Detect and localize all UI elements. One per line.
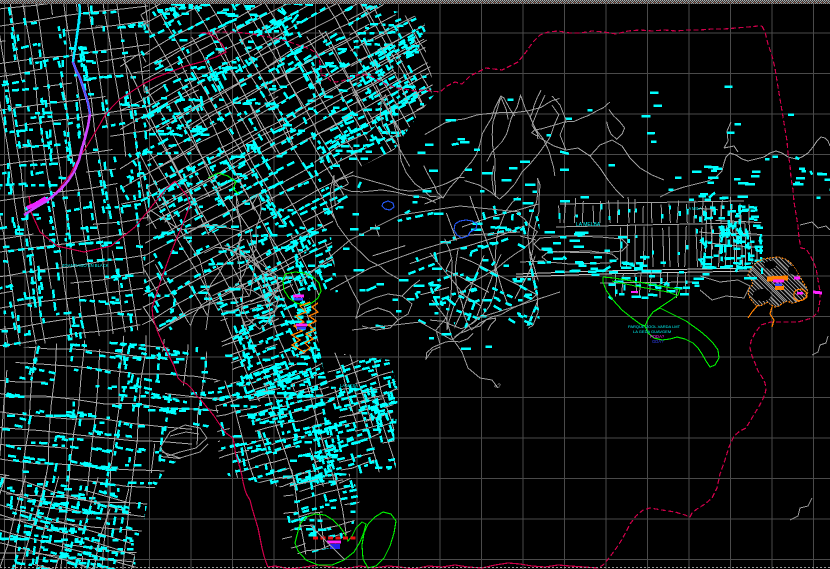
svg-text:LA MELBA: LA MELBA bbox=[576, 222, 601, 228]
svg-text:ATE: ATE bbox=[95, 24, 103, 29]
svg-text:GDA?: GDA? bbox=[652, 339, 664, 344]
svg-text:LA MILA: LA MILA bbox=[686, 206, 702, 211]
svg-text:«?: «? bbox=[494, 384, 501, 390]
svg-text:ZOANTIAGO EN BLACK: ZOANTIAGO EN BLACK bbox=[62, 263, 109, 268]
svg-text:LA MESA: LA MESA bbox=[340, 383, 358, 388]
